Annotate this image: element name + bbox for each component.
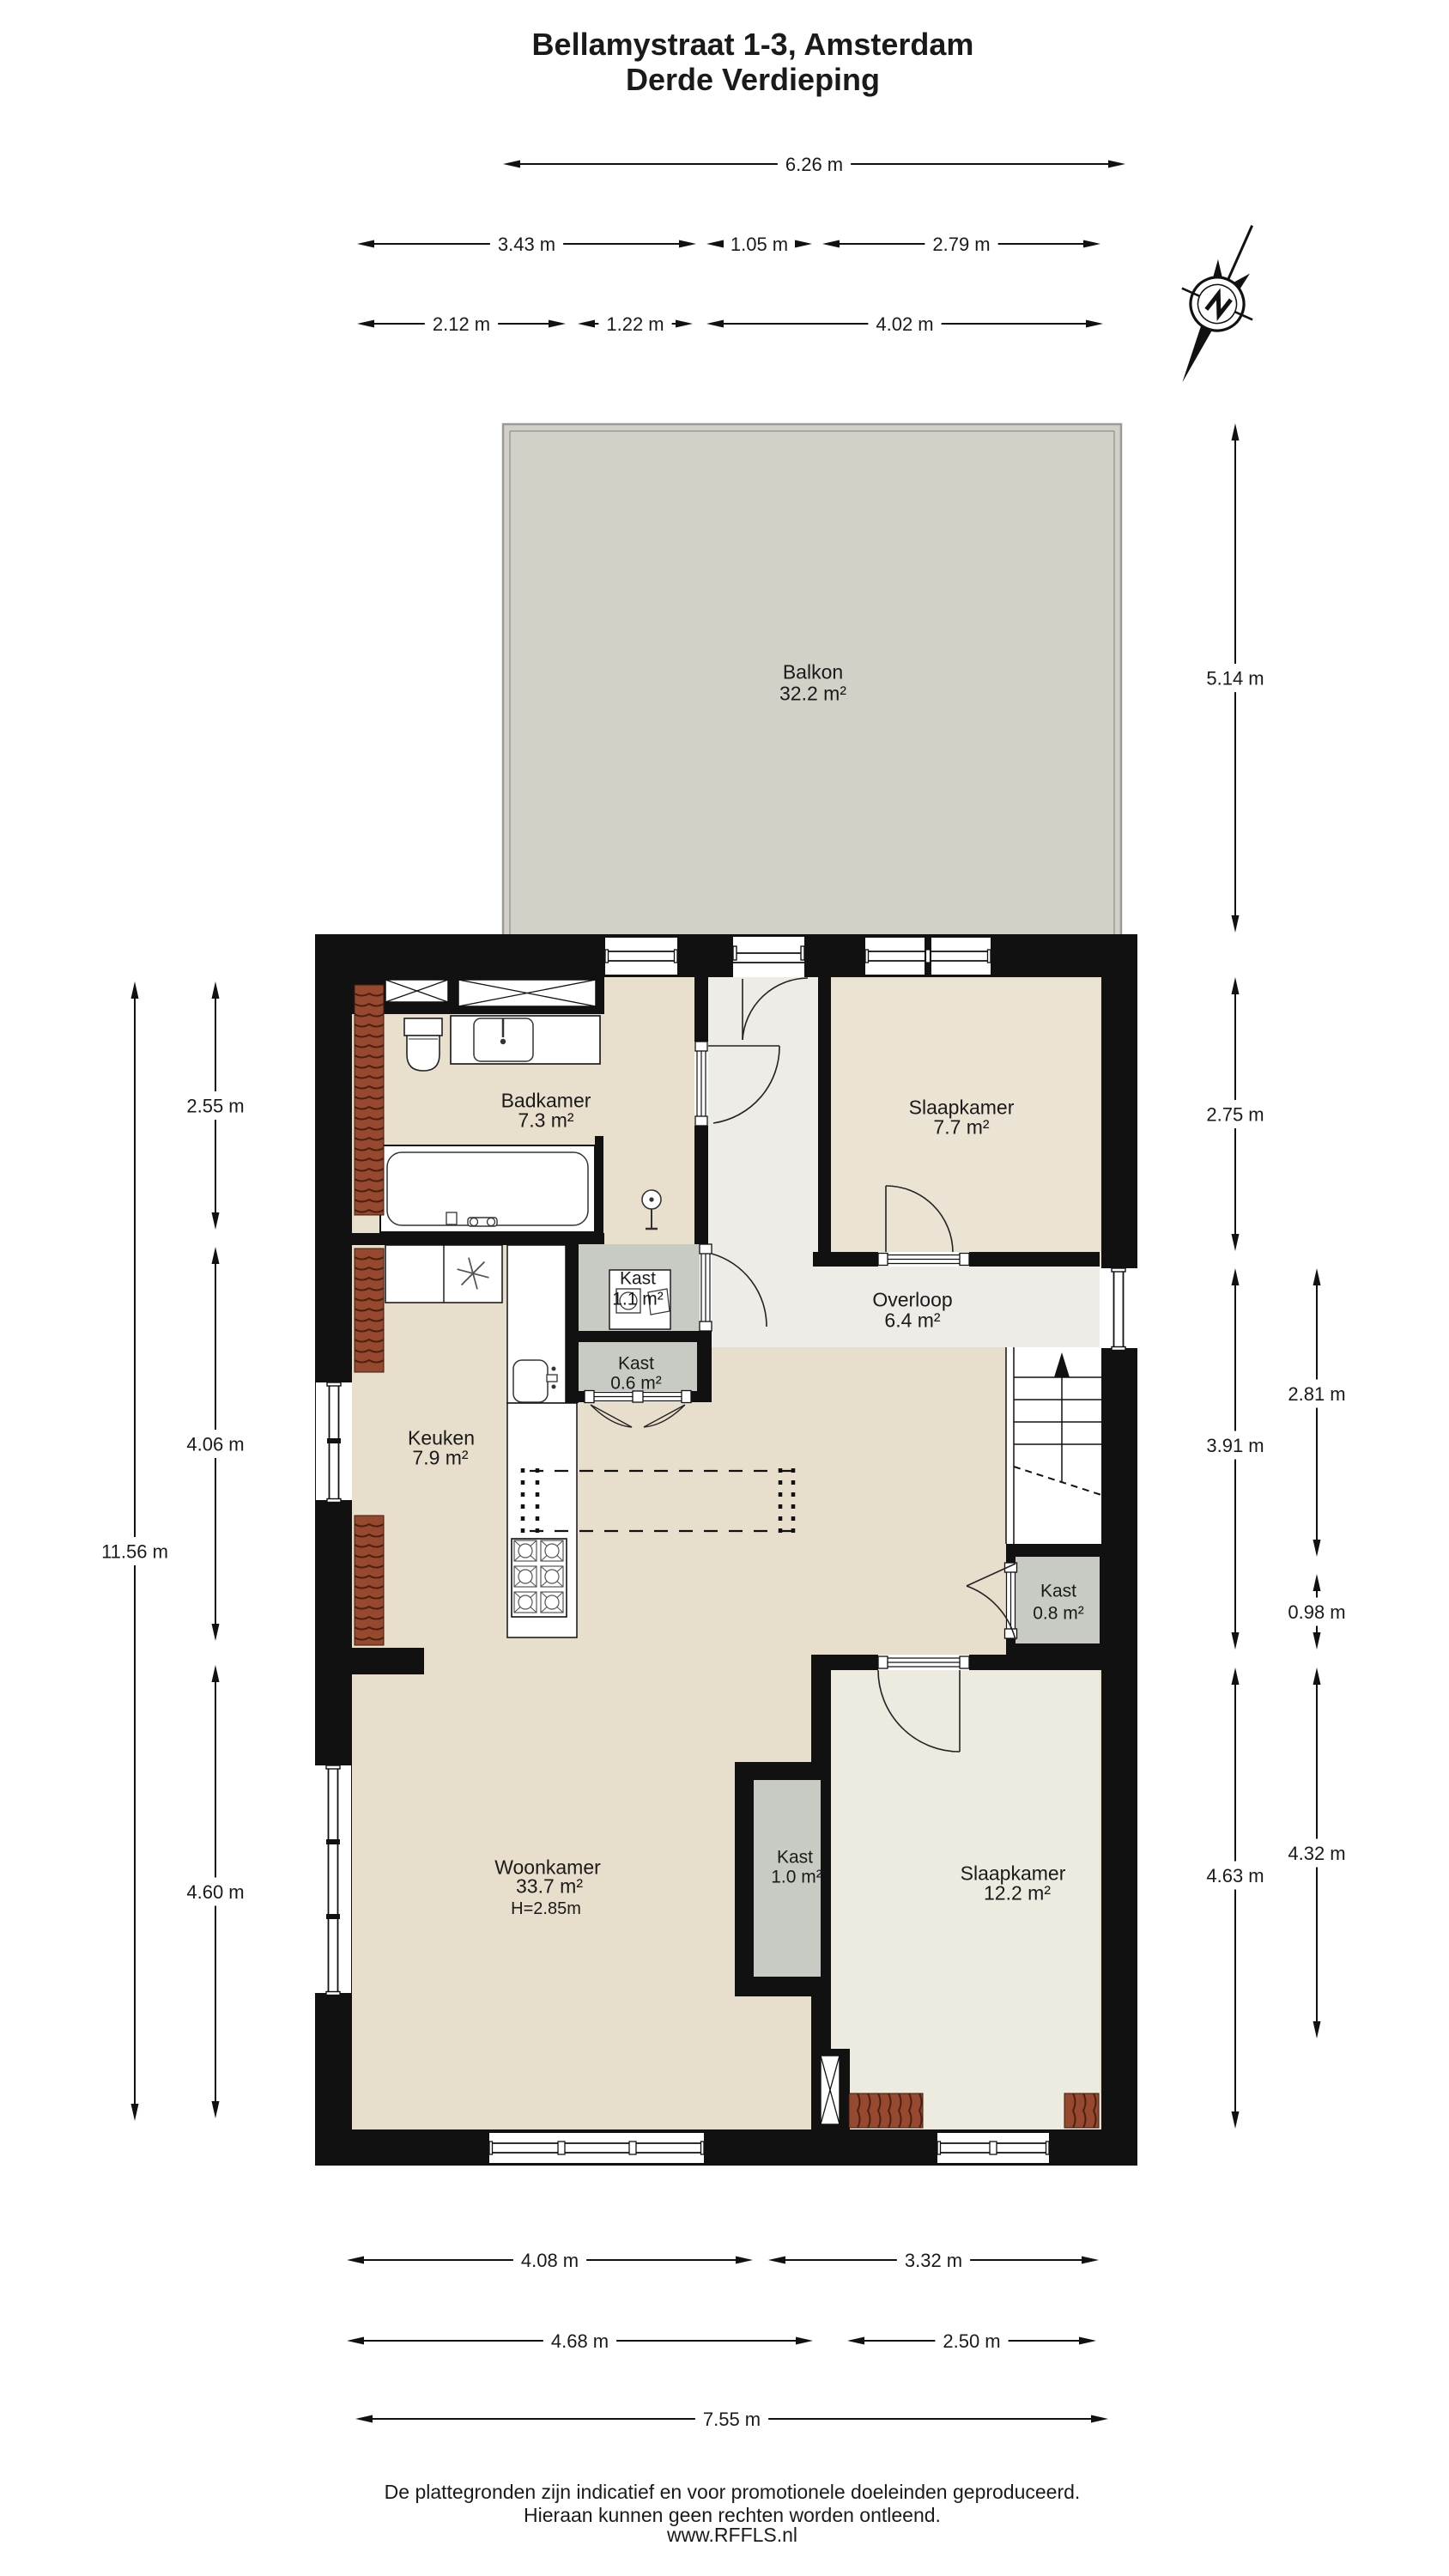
svg-text:H=2.85m: H=2.85m xyxy=(511,1899,581,1918)
svg-text:1.0 m²: 1.0 m² xyxy=(771,1868,822,1887)
svg-text:4.68 m: 4.68 m xyxy=(551,2330,609,2352)
svg-text:3.32 m: 3.32 m xyxy=(905,2250,962,2271)
svg-text:Balkon: Balkon xyxy=(783,660,843,683)
svg-text:www.RFFLS.nl: www.RFFLS.nl xyxy=(666,2524,797,2546)
svg-text:2.79 m: 2.79 m xyxy=(932,234,990,255)
svg-text:0.98 m: 0.98 m xyxy=(1288,1601,1345,1623)
svg-text:4.06 m: 4.06 m xyxy=(186,1433,244,1455)
svg-text:2.75 m: 2.75 m xyxy=(1206,1103,1264,1125)
svg-text:1.05 m: 1.05 m xyxy=(731,234,788,255)
svg-text:2.12 m: 2.12 m xyxy=(433,313,490,335)
svg-text:32.2 m²: 32.2 m² xyxy=(779,682,846,704)
svg-text:2.50 m: 2.50 m xyxy=(943,2330,1000,2352)
svg-text:7.3 m²: 7.3 m² xyxy=(518,1109,574,1131)
svg-text:4.02 m: 4.02 m xyxy=(876,313,933,335)
svg-text:4.63 m: 4.63 m xyxy=(1206,1865,1264,1886)
svg-text:4.60 m: 4.60 m xyxy=(186,1881,244,1903)
svg-text:0.8 m²: 0.8 m² xyxy=(1033,1604,1084,1624)
svg-text:De plattegronden zijn indicati: De plattegronden zijn indicatief en voor… xyxy=(385,2481,1081,2503)
svg-text:Kast: Kast xyxy=(620,1269,656,1289)
svg-text:6.26 m: 6.26 m xyxy=(785,154,843,175)
svg-text:1.22 m: 1.22 m xyxy=(606,313,664,335)
svg-text:11.56 m: 11.56 m xyxy=(101,1540,168,1562)
svg-text:3.91 m: 3.91 m xyxy=(1206,1435,1264,1456)
svg-text:Overloop: Overloop xyxy=(872,1288,952,1310)
svg-text:33.7 m²: 33.7 m² xyxy=(516,1874,583,1897)
svg-text:4.32 m: 4.32 m xyxy=(1288,1843,1345,1864)
svg-text:3.43 m: 3.43 m xyxy=(498,234,555,255)
svg-text:Bellamystraat 1-3, Amsterdam: Bellamystraat 1-3, Amsterdam xyxy=(532,27,974,62)
svg-text:7.55 m: 7.55 m xyxy=(703,2409,761,2430)
svg-text:7.9 m²: 7.9 m² xyxy=(412,1446,469,1468)
svg-text:7.7 m²: 7.7 m² xyxy=(933,1115,990,1138)
svg-text:Kast: Kast xyxy=(618,1354,654,1374)
svg-text:0.6 m²: 0.6 m² xyxy=(610,1374,662,1394)
svg-text:4.08 m: 4.08 m xyxy=(521,2250,579,2271)
svg-text:Kast: Kast xyxy=(1040,1582,1076,1601)
svg-text:2.81 m: 2.81 m xyxy=(1288,1383,1345,1405)
svg-text:1.1 m²: 1.1 m² xyxy=(612,1290,664,1309)
svg-text:Kast: Kast xyxy=(777,1848,813,1868)
svg-text:12.2 m²: 12.2 m² xyxy=(984,1881,1051,1904)
svg-text:2.55 m: 2.55 m xyxy=(186,1095,244,1116)
svg-text:Derde Verdieping: Derde Verdieping xyxy=(626,62,880,97)
svg-text:5.14 m: 5.14 m xyxy=(1206,667,1264,689)
svg-text:6.4 m²: 6.4 m² xyxy=(884,1309,941,1331)
